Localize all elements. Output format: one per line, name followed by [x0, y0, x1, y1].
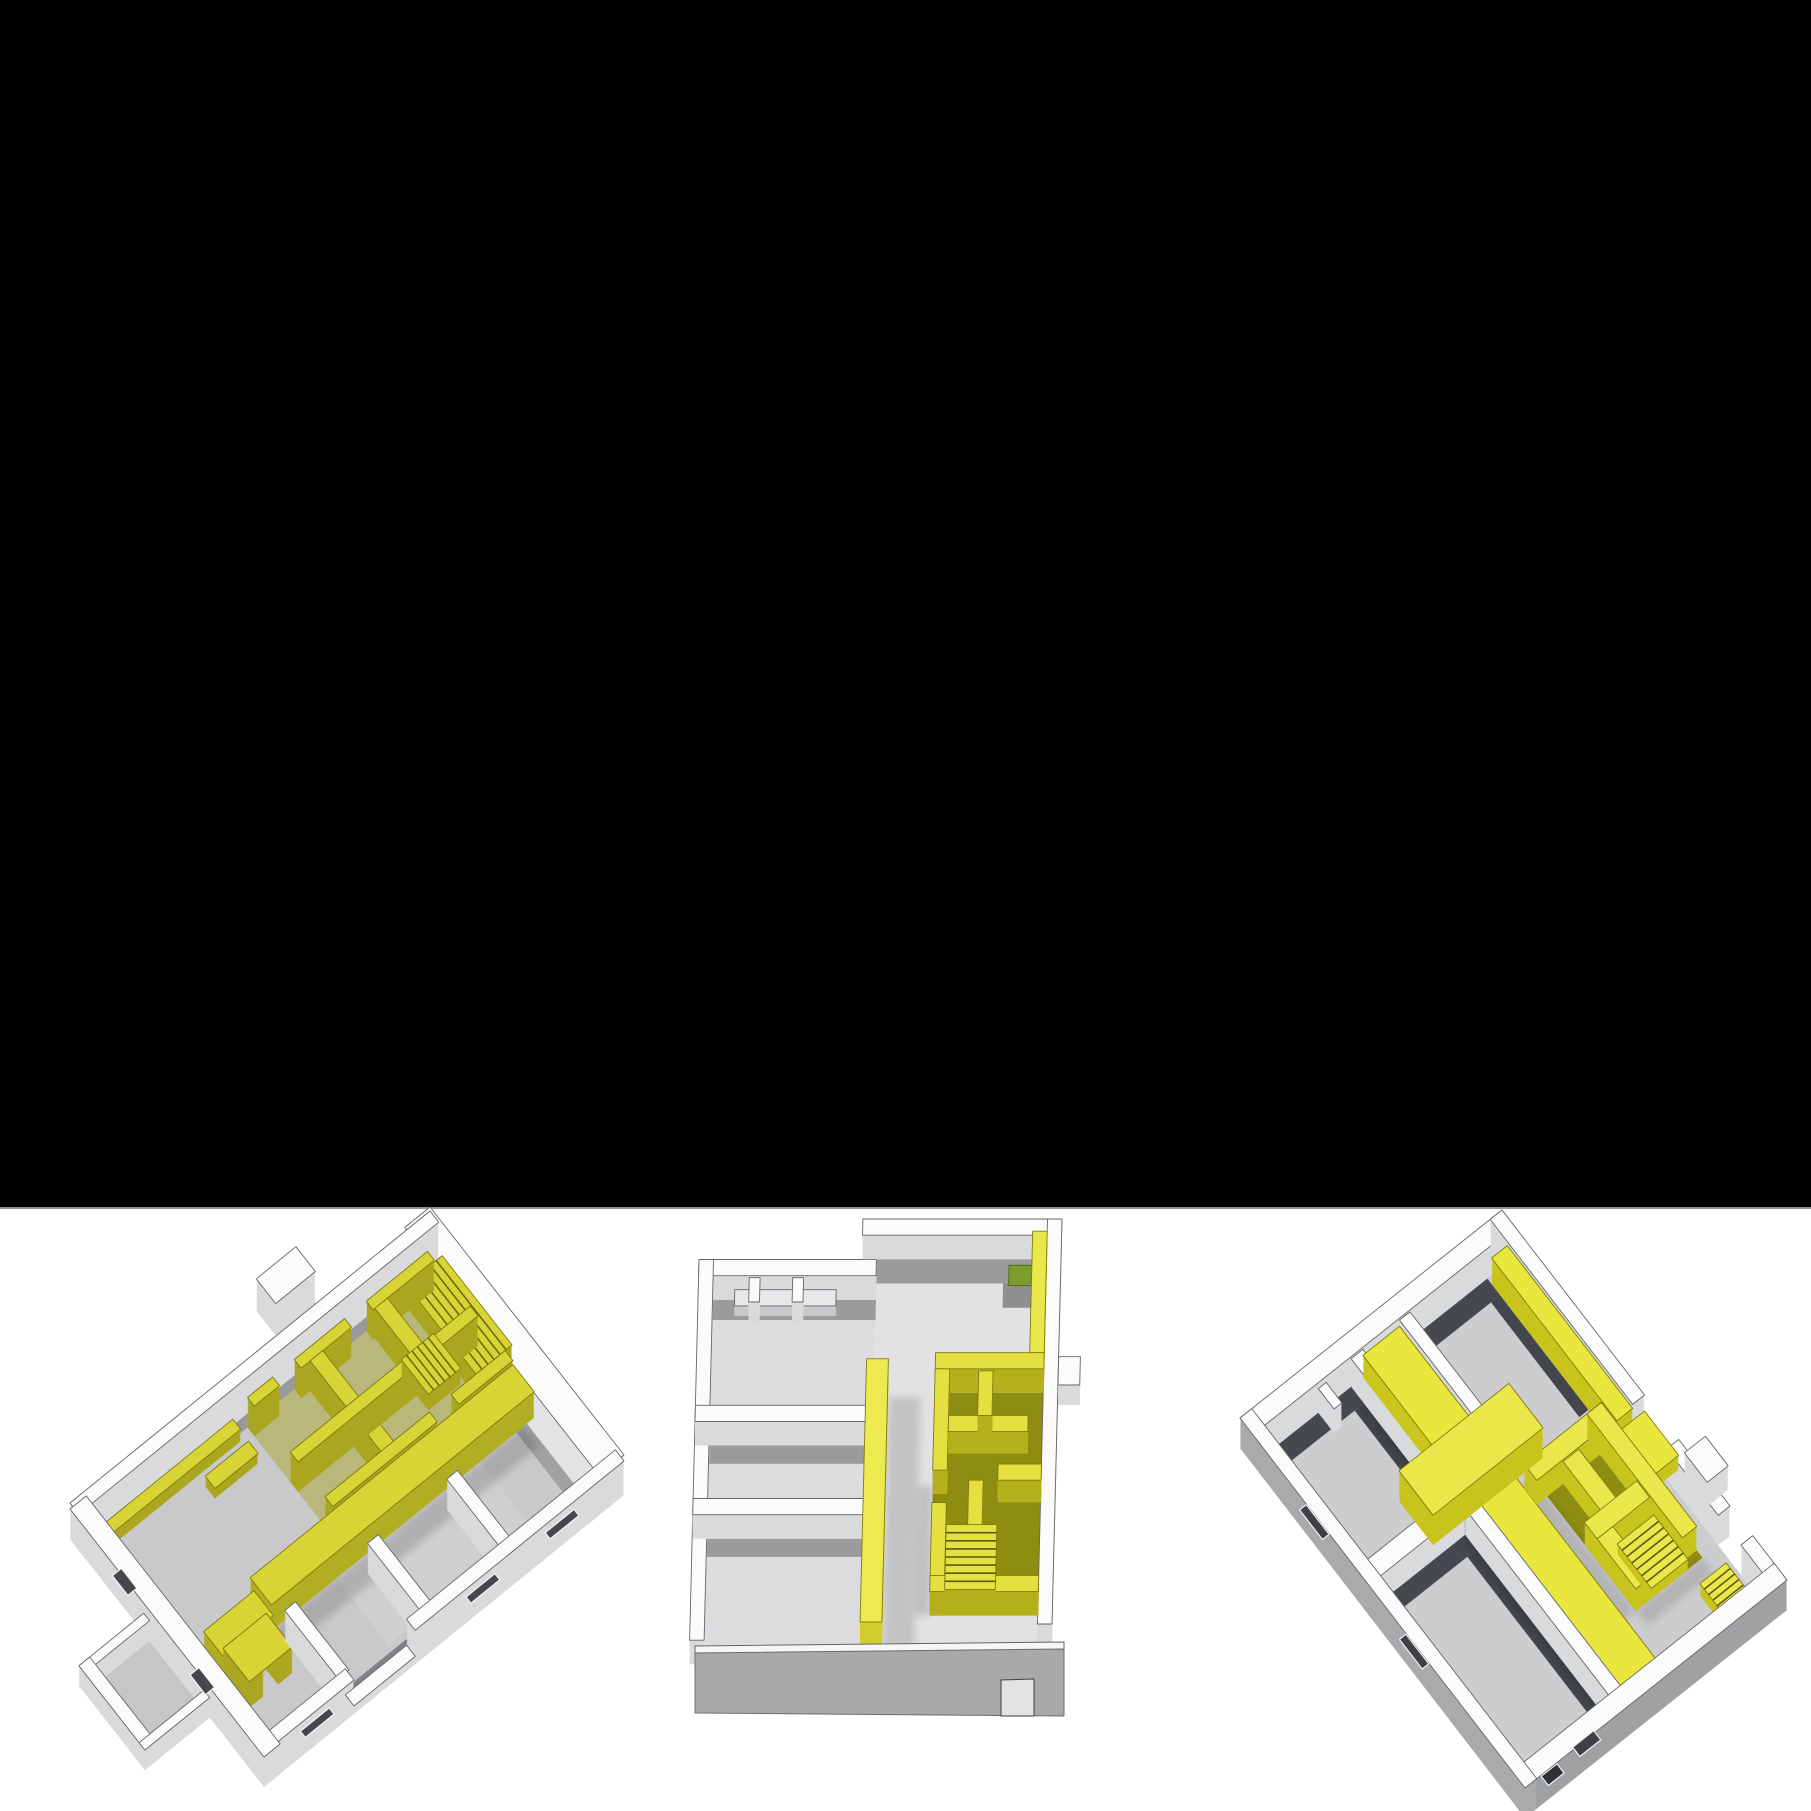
- floorplan-model-left: [70, 1207, 624, 1787]
- floorplan-figure: [0, 0, 1811, 1811]
- floorplan-model-right: [1240, 1210, 1787, 1811]
- page-canvas: [0, 0, 1811, 1811]
- floorplan-model-middle: [690, 1219, 1081, 1716]
